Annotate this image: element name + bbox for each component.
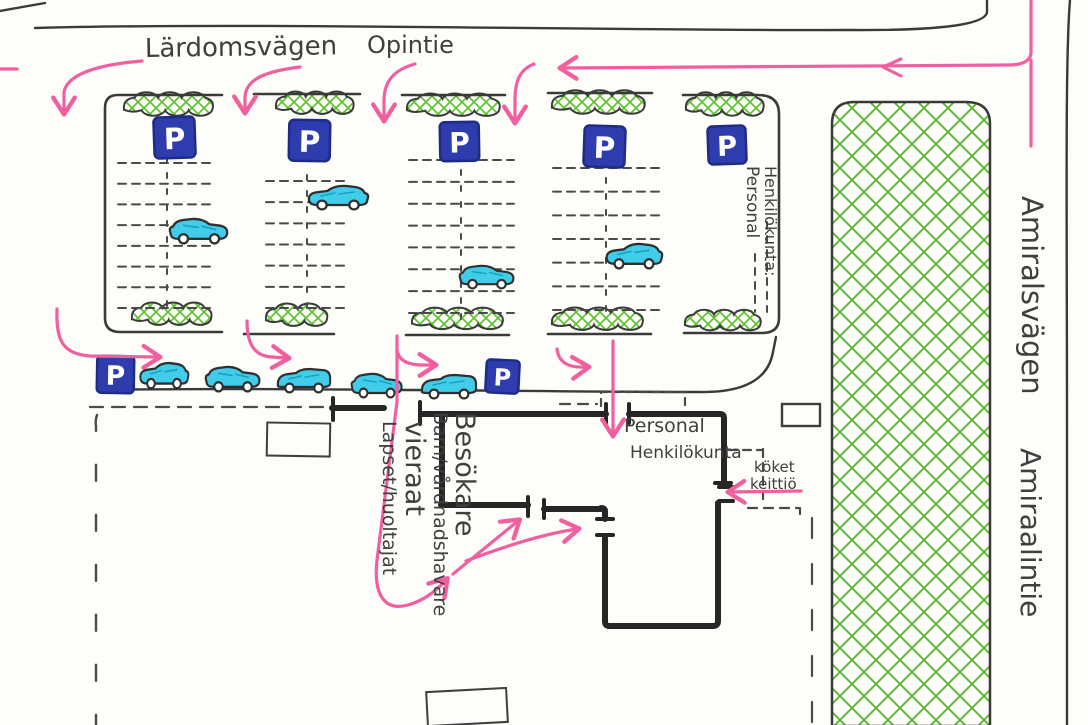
staff-entrance-line2: Henkilökunta xyxy=(630,443,742,463)
car-wheel xyxy=(468,280,477,288)
car-wheel xyxy=(173,379,181,388)
hedge xyxy=(412,308,503,330)
road-flow-chevron xyxy=(883,59,901,76)
bay-entry-arrow xyxy=(515,64,534,121)
building-lower-wing-wall xyxy=(605,503,718,626)
car-icon xyxy=(422,375,476,398)
visitors-fi-line2: vieraat xyxy=(399,421,430,516)
street-label-opintie: Opintie xyxy=(367,31,454,59)
car-wheel xyxy=(210,234,219,243)
parking-sign-letter: P xyxy=(298,125,320,159)
parking-sign-letter: P xyxy=(493,363,512,392)
staff-parking-line1: Personal xyxy=(742,166,762,238)
car-wheel xyxy=(645,259,654,268)
top-road-north-edge xyxy=(35,0,987,30)
car-wheel xyxy=(314,384,323,393)
parking-sign-icon: P xyxy=(289,120,331,162)
parking-area: PPPPPPP xyxy=(97,93,779,394)
hedge xyxy=(407,93,500,115)
staff-parking-line2: Henkilökunta: xyxy=(761,166,780,276)
visitors-sv-line2: Besökare xyxy=(449,412,480,537)
kitchen-door-jambs xyxy=(719,487,733,501)
car-wheel xyxy=(360,389,368,398)
parking-bay-rows xyxy=(553,162,660,318)
visitors-fi-line1: Lapset/huoltajat xyxy=(378,421,400,575)
right-road-east-edge xyxy=(1067,0,1070,725)
bay-exit-arrow xyxy=(397,350,434,365)
car-icon xyxy=(309,186,368,210)
car-wheel xyxy=(387,389,395,398)
parking-sign-letter: P xyxy=(717,131,738,163)
shed-rect xyxy=(782,404,820,426)
car-wheel xyxy=(430,390,439,399)
car-wheel xyxy=(615,259,624,268)
car-wheel xyxy=(179,234,188,243)
street-label-amiraalintie: Amiraalintie xyxy=(1014,448,1047,617)
parking-sign-icon: P xyxy=(440,122,480,162)
visitors-sv-line1: Barn/vårdnadshavare xyxy=(429,412,452,616)
road-flow-arrow xyxy=(562,1,1031,68)
car-wheel xyxy=(285,384,294,393)
car-wheel xyxy=(214,382,223,391)
kitchen-label-line2: keittiö xyxy=(750,475,797,493)
car-wheel xyxy=(460,390,469,399)
parking-sign-letter: P xyxy=(105,361,125,392)
parking-bay-rows xyxy=(409,154,514,321)
kitchen-label-line1: köket xyxy=(754,458,795,476)
hedge xyxy=(685,310,761,331)
green-field-area xyxy=(832,102,990,725)
parking-sign-letter: P xyxy=(449,126,470,159)
car-wheel xyxy=(497,280,506,288)
bay-exit-arrow xyxy=(557,349,587,367)
visitors-swedish-label: Barn/vårdnadshavareBesökare xyxy=(429,412,480,616)
street-label-amiralsvagen: Amiralsvägen xyxy=(1015,196,1049,395)
visitor-path-branch xyxy=(466,529,577,561)
shed-rect xyxy=(426,688,508,725)
hedge xyxy=(132,302,212,324)
parking-sign-letter: P xyxy=(593,131,616,166)
car-icon xyxy=(352,374,402,398)
car-icon xyxy=(170,219,227,243)
staff-parking-label: PersonalHenkilökunta: xyxy=(742,166,780,276)
car-icon xyxy=(140,363,188,388)
shed-rect xyxy=(267,422,331,456)
site-map-canvas: PPPPPPPLärdomsvägenOpintieAmiralsvägenAm… xyxy=(0,0,1088,725)
property-line-dashed xyxy=(96,415,97,725)
car-icon xyxy=(460,266,514,289)
parking-sign-letter: P xyxy=(163,122,186,157)
car-wheel xyxy=(317,201,326,210)
car-icon xyxy=(206,367,260,391)
top-road-edge-left xyxy=(0,3,45,11)
street-label-lardomsvagen: Lärdomsvägen xyxy=(145,31,338,64)
car-icon xyxy=(607,244,663,268)
bay-exit-arrow xyxy=(247,321,287,358)
car-wheel xyxy=(147,379,155,388)
hand-drawn-site-map: PPPPPPPLärdomsvägenOpintieAmiralsvägenAm… xyxy=(0,0,1088,725)
parking-sign-icon: P xyxy=(583,125,625,167)
car-wheel xyxy=(243,382,252,391)
car-wheel xyxy=(349,201,358,210)
parking-sign-icon: P xyxy=(153,116,195,158)
parking-sign-icon: P xyxy=(97,356,135,394)
parking-sign-icon: P xyxy=(707,125,746,164)
parking-sign-icon: P xyxy=(485,359,520,394)
hedge xyxy=(266,303,327,325)
staff-entrance-line1: Personal xyxy=(624,415,705,437)
visitors-finnish-label: Lapset/huoltajatvieraat xyxy=(378,421,430,575)
